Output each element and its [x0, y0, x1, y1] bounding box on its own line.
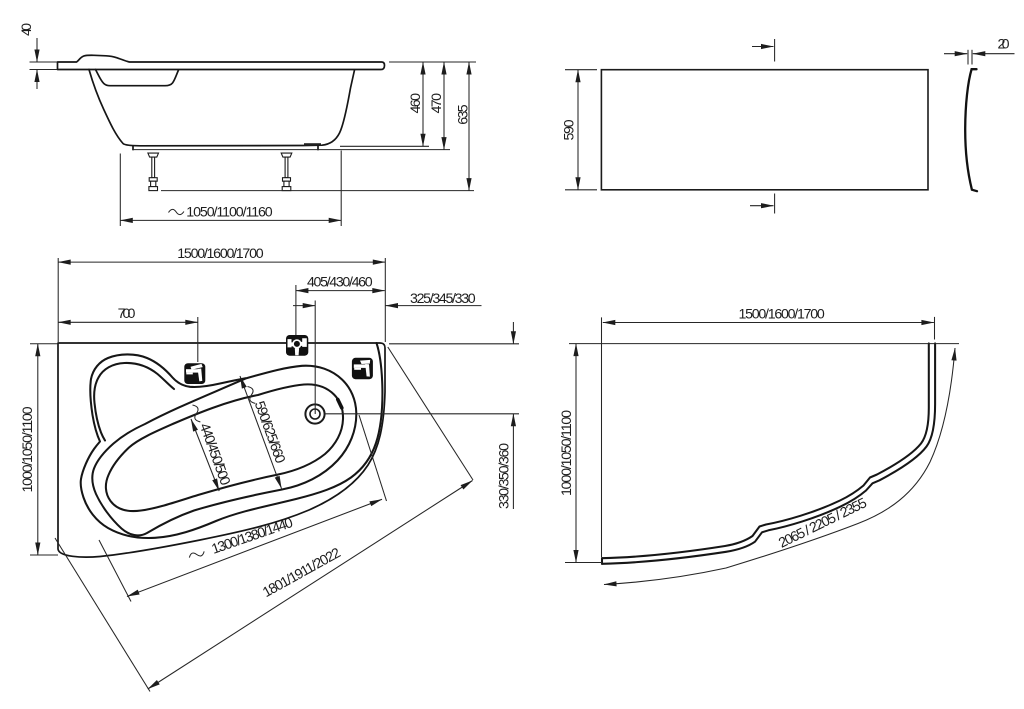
svg-text:405/430/460: 405/430/460 — [307, 275, 373, 291]
svg-text:325/345/330: 325/345/330 — [410, 291, 476, 307]
svg-text:635: 635 — [455, 104, 471, 125]
svg-text:590: 590 — [562, 119, 578, 140]
svg-text:1000/1050/1100: 1000/1050/1100 — [20, 406, 36, 492]
svg-text:700: 700 — [118, 306, 136, 322]
svg-text:1000/1050/1100: 1000/1050/1100 — [559, 410, 575, 496]
svg-text:1500/1600/1700: 1500/1600/1700 — [177, 246, 263, 262]
svg-text:470: 470 — [429, 93, 445, 114]
svg-text:40: 40 — [19, 23, 35, 36]
svg-text:460: 460 — [408, 93, 424, 114]
svg-text:1500/1600/1700: 1500/1600/1700 — [739, 306, 825, 322]
svg-text:330/350/360: 330/350/360 — [497, 443, 513, 509]
svg-text:20: 20 — [998, 36, 1010, 52]
svg-text:1050/1100/1160: 1050/1100/1160 — [186, 205, 273, 221]
